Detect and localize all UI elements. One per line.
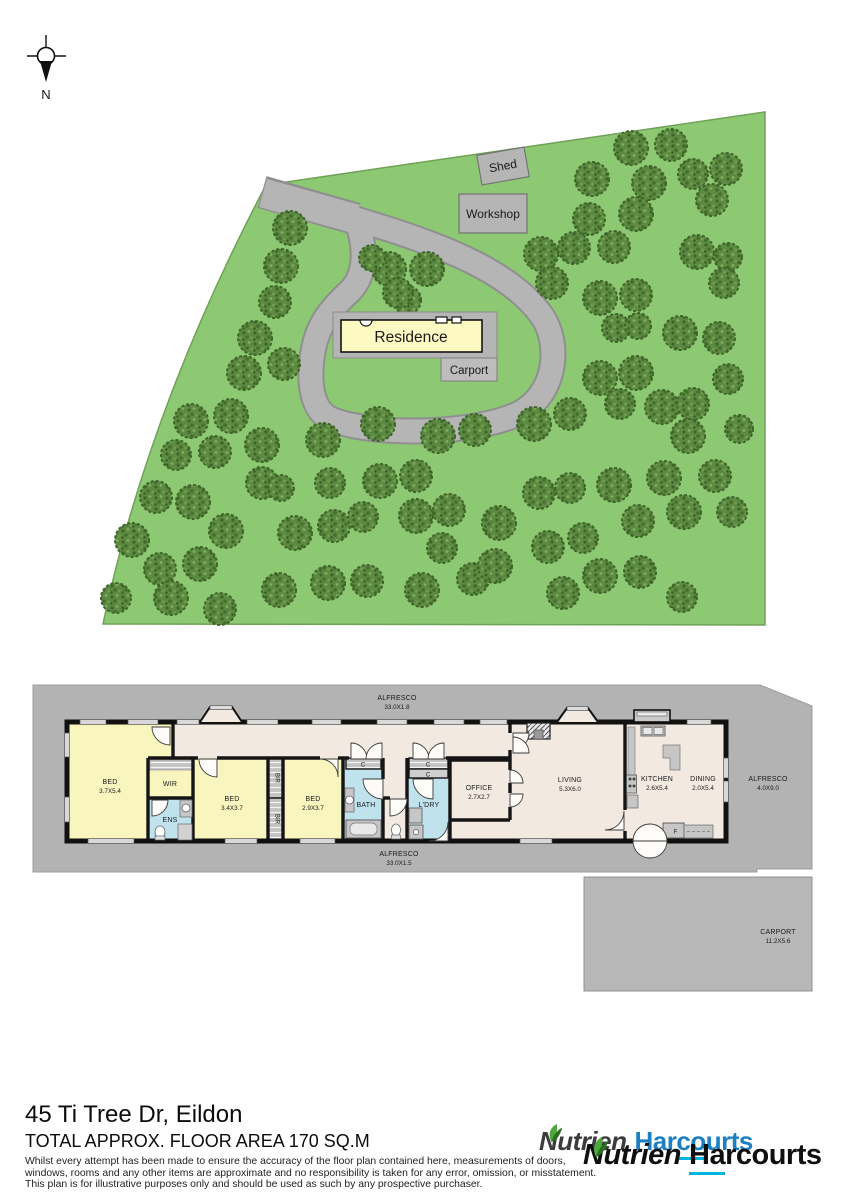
compass-needle-icon — [40, 61, 52, 82]
tree-icon — [583, 281, 617, 315]
carport-dims: 11.2X5.6 — [766, 938, 791, 945]
workshop-label: Workshop — [466, 207, 520, 221]
tree-icon — [268, 348, 300, 380]
bed1-dims: 3.7X5.4 — [99, 788, 121, 795]
kitchen-label: KITCHEN — [641, 776, 673, 783]
site-plan: Shed Workshop Residence Carport — [101, 112, 765, 625]
dishwasher-icon — [627, 795, 638, 808]
page-title: 45 Ti Tree Dr, Eildon — [25, 1102, 825, 1128]
bir-label: BIR — [274, 773, 280, 784]
fridge-label: F — [674, 830, 678, 836]
tree-icon — [558, 232, 590, 264]
tree-icon — [717, 497, 747, 527]
tree-icon — [348, 502, 378, 532]
tree-icon — [115, 523, 149, 557]
washer-icon — [409, 808, 422, 823]
tree-icon — [575, 162, 609, 196]
tree-icon — [554, 398, 586, 430]
bed2-dims: 3.4X3.7 — [221, 805, 243, 812]
alfresco-bottom-dims: 33.0X1.5 — [386, 860, 412, 867]
tree-icon — [536, 267, 568, 299]
tree-icon — [268, 475, 294, 501]
tree-icon — [568, 523, 598, 553]
tree-icon — [405, 573, 439, 607]
tree-icon — [318, 510, 350, 542]
kitchen-dims: 2.6X5.4 — [646, 785, 668, 792]
compass-north-label: N — [41, 87, 50, 102]
floorplan-page: N Shed Workshop Res — [0, 0, 849, 1200]
basin-icon — [346, 796, 354, 804]
tree-icon — [532, 531, 564, 563]
bir-label: BIR — [274, 814, 280, 825]
tree-icon — [262, 573, 296, 607]
wir-label: WIR — [163, 781, 177, 788]
tree-icon — [174, 404, 208, 438]
tree-icon — [583, 559, 617, 593]
tree-icon — [583, 361, 617, 395]
tree-icon — [605, 389, 635, 419]
tree-icon — [555, 473, 585, 503]
dining-label: DINING — [690, 776, 716, 783]
tree-icon — [645, 390, 679, 424]
residence-notch-icon — [436, 317, 447, 323]
bath-label: BATH — [357, 802, 376, 809]
tree-icon — [622, 505, 654, 537]
tree-icon — [597, 468, 631, 502]
tree-icon — [209, 514, 243, 548]
tree-icon — [161, 440, 191, 470]
carport-label: CARPORT — [760, 929, 796, 936]
tree-icon — [624, 556, 656, 588]
tree-icon — [696, 184, 728, 216]
tree-icon — [427, 533, 457, 563]
tree-icon — [614, 131, 648, 165]
residence-notch-icon — [452, 317, 461, 323]
tree-icon — [671, 419, 705, 453]
tree-icon — [524, 237, 558, 271]
tree-icon — [478, 549, 512, 583]
tree-icon — [573, 203, 605, 235]
tree-icon — [204, 593, 236, 625]
tree-icon — [517, 407, 551, 441]
toilet-icon — [392, 824, 401, 836]
tree-icon — [421, 419, 455, 453]
alfresco-right-label: ALFRESCO — [748, 776, 788, 783]
tree-icon — [699, 460, 731, 492]
tree-icon — [459, 414, 491, 446]
tree-icon — [678, 159, 708, 189]
tree-icon — [714, 243, 742, 271]
alfresco-top-label: ALFRESCO — [377, 695, 417, 702]
tree-icon — [725, 415, 753, 443]
tree-icon — [482, 506, 516, 540]
tree-icon — [383, 278, 413, 308]
dining-dims: 2.0X5.4 — [692, 785, 714, 792]
logo-brand-harcourts: Ha — [689, 1139, 725, 1175]
office-label: OFFICE — [466, 785, 493, 792]
tree-icon — [663, 316, 697, 350]
basin-icon — [182, 804, 190, 812]
wir-shelf — [150, 760, 192, 770]
tree-icon — [238, 321, 272, 355]
tree-icon — [351, 565, 383, 597]
tree-icon — [523, 477, 555, 509]
tree-icon — [273, 211, 307, 245]
tree-icon — [680, 235, 714, 269]
tree-icon — [140, 481, 172, 513]
alfresco-right-dims: 4.0X9.0 — [757, 785, 779, 792]
alfresco-bottom-label: ALFRESCO — [379, 851, 419, 858]
tree-icon — [306, 423, 340, 457]
tree-icon — [433, 494, 465, 526]
tree-icon — [315, 468, 345, 498]
tree-icon — [199, 436, 231, 468]
tree-icon — [713, 364, 743, 394]
tree-icon — [547, 577, 579, 609]
living-dims: 5.3X6.0 — [559, 786, 581, 793]
tree-icon — [183, 547, 217, 581]
tree-icon — [361, 407, 395, 441]
shower-icon — [178, 824, 192, 840]
closet-label: C — [426, 763, 431, 769]
tree-icon — [259, 286, 291, 318]
tree-icon — [667, 582, 697, 612]
tree-icon — [154, 581, 188, 615]
ens-label: ENS — [163, 817, 178, 824]
tree-icon — [101, 583, 131, 613]
closet-label: C — [361, 763, 366, 769]
floor-plan: ALFRESCO 33.0X1.8 ALFRESCO 33.0X1.5 ALFR… — [33, 685, 812, 991]
tree-icon — [655, 129, 687, 161]
tree-icon — [399, 499, 433, 533]
tree-icon — [245, 428, 279, 462]
bed3-dims: 2.9X3.7 — [302, 805, 324, 812]
tree-icon — [619, 197, 653, 231]
site-carport-label: Carport — [450, 365, 489, 377]
tree-icon — [677, 388, 709, 420]
tree-icon — [619, 356, 653, 390]
tree-icon — [264, 249, 298, 283]
tree-icon — [359, 245, 385, 271]
tree-icon — [598, 231, 630, 263]
tree-icon — [620, 279, 652, 311]
tree-icon — [144, 553, 176, 585]
tree-icon — [703, 322, 735, 354]
tree-icon — [176, 485, 210, 519]
tree-icon — [647, 461, 681, 495]
bed1-label: BED — [103, 779, 118, 786]
tree-icon — [363, 464, 397, 498]
tree-icon — [400, 460, 432, 492]
closet-label: C — [426, 773, 431, 779]
living-label: LIVING — [558, 777, 582, 784]
bed2-label: BED — [225, 796, 240, 803]
disclaimer-line: This plan is for illustrative purposes o… — [25, 1179, 825, 1191]
workshop: Workshop — [459, 194, 527, 233]
alfresco-top-dims: 33.0X1.8 — [384, 704, 410, 711]
tree-icon — [410, 252, 444, 286]
residence-label: Residence — [374, 329, 447, 346]
tree-icon — [227, 356, 261, 390]
tree-icon — [278, 516, 312, 550]
tree-icon — [710, 153, 742, 185]
tree-icon — [632, 166, 666, 200]
tree-icon — [214, 399, 248, 433]
tree-icon — [667, 495, 701, 529]
plan-canvas: N Shed Workshop Res — [0, 0, 849, 1075]
tree-icon — [311, 566, 345, 600]
ldry-label: L'DRY — [419, 802, 440, 809]
tree-icon — [625, 313, 651, 339]
office-dims: 2.7X2.7 — [468, 794, 490, 801]
bed3-label: BED — [306, 796, 321, 803]
cooktop-icon — [627, 775, 637, 793]
nutrien-harcourts-logo-front: NutrienHarcourts — [590, 1139, 822, 1172]
tree-icon — [709, 268, 739, 298]
compass: N — [27, 35, 66, 102]
